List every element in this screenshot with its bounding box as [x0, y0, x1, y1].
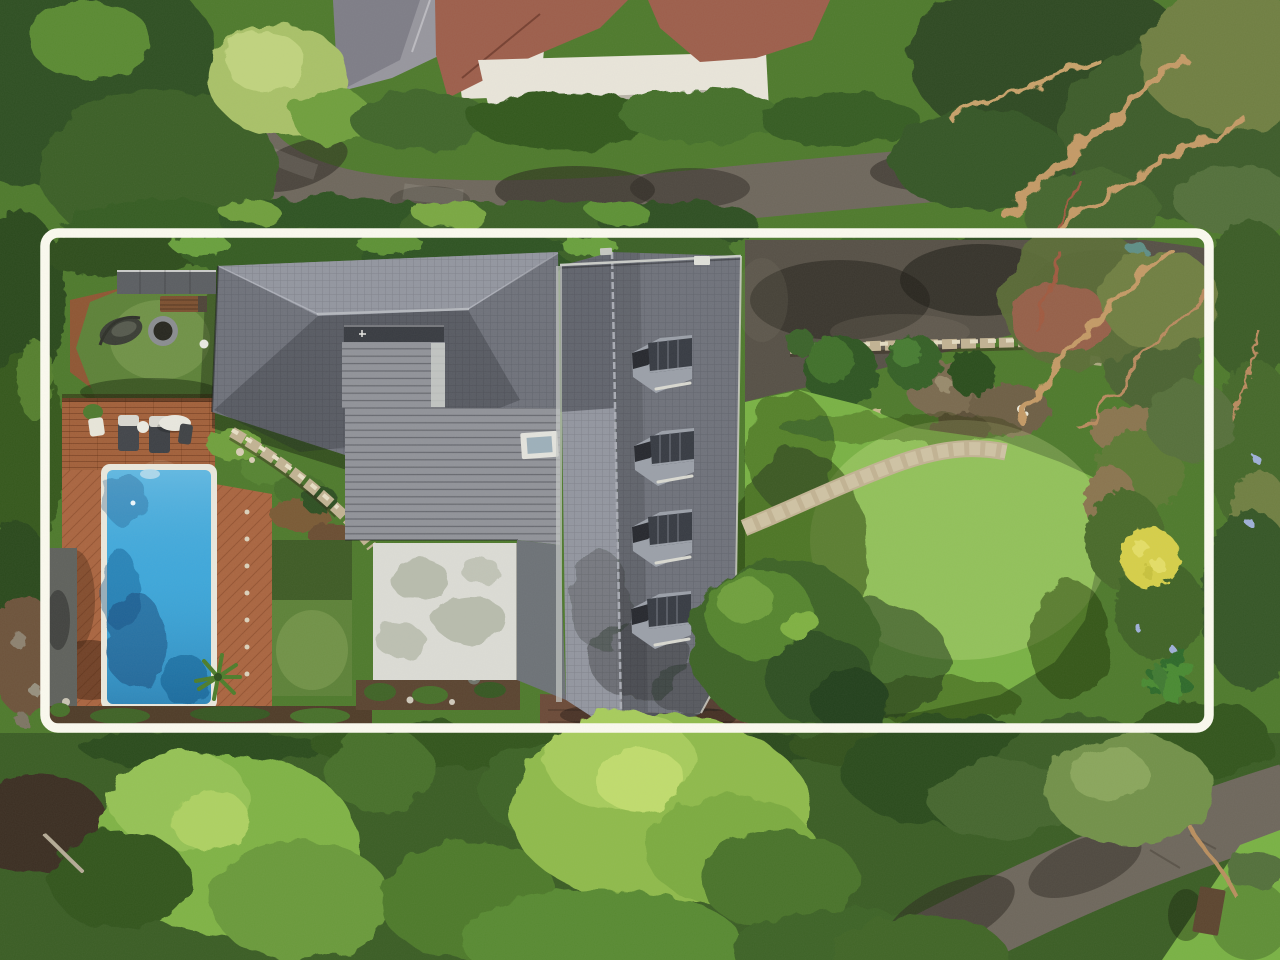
photo-grain [0, 0, 1280, 960]
aerial-photograph [0, 0, 1280, 960]
aerial-photo-canvas [0, 0, 1280, 960]
